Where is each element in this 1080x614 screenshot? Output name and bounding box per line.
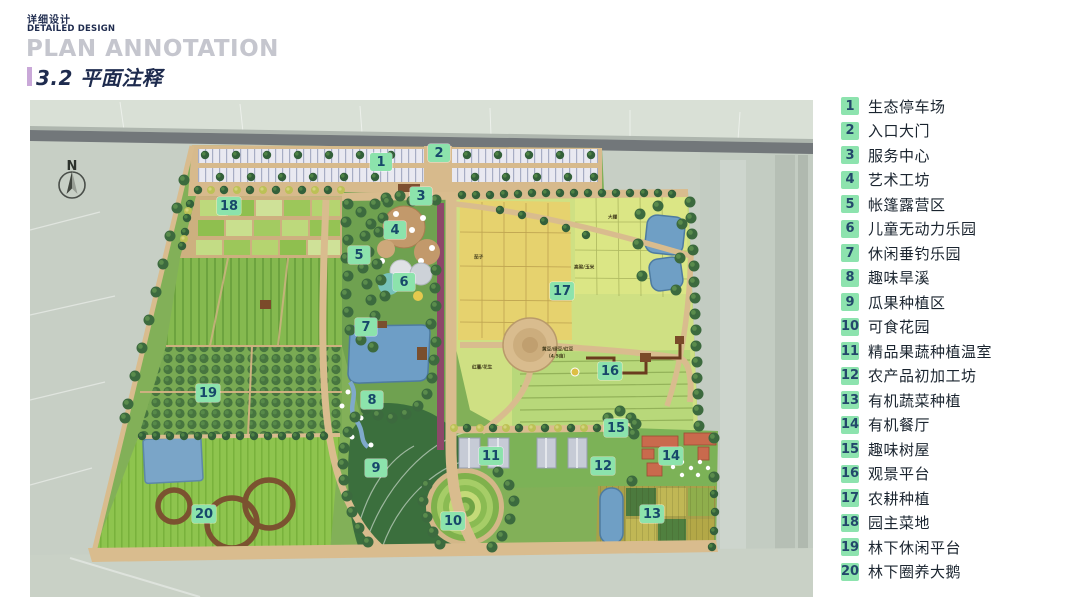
legend-item-3: 3服务中心 (841, 146, 992, 164)
legend-label: 有机餐厅 (868, 414, 930, 435)
plan-marker-2: 2 (428, 144, 450, 162)
legend-number-badge: 2 (841, 122, 859, 140)
legend-item-19: 19林下休闲平台 (841, 538, 992, 556)
plan-marker-1: 1 (370, 153, 392, 171)
legend-number-badge: 9 (841, 293, 859, 311)
legend-item-11: 11精品果蔬种植温室 (841, 342, 992, 360)
plan-marker-3: 3 (410, 187, 432, 205)
legend-number-badge: 10 (841, 318, 859, 336)
legend-item-16: 16观景平台 (841, 465, 992, 483)
legend-number-badge: 1 (841, 97, 859, 115)
legend-item-14: 14有机餐厅 (841, 416, 992, 434)
legend-number-badge: 16 (841, 465, 859, 483)
legend-label: 趣味树屋 (868, 439, 930, 460)
legend-label: 趣味旱溪 (868, 267, 930, 288)
legend-number-badge: 7 (841, 244, 859, 262)
legend-number-badge: 12 (841, 367, 859, 385)
legend-item-9: 9瓜果种植区 (841, 293, 992, 311)
legend-number-badge: 19 (841, 538, 859, 556)
legend-item-13: 13有机蔬菜种植 (841, 391, 992, 409)
legend-number-badge: 5 (841, 195, 859, 213)
legend-number-badge: 4 (841, 171, 859, 189)
legend-number-badge: 15 (841, 440, 859, 458)
legend-number-badge: 14 (841, 416, 859, 434)
plan-marker-18: 18 (217, 197, 241, 215)
legend-item-7: 7休闲垂钓乐园 (841, 244, 992, 262)
legend-item-10: 10可食花园 (841, 318, 992, 336)
legend-item-18: 18园主菜地 (841, 514, 992, 532)
legend-item-4: 4艺术工坊 (841, 171, 992, 189)
legend-label: 休闲垂钓乐园 (868, 243, 961, 264)
plan-marker-13: 13 (640, 505, 664, 523)
legend-number-badge: 6 (841, 220, 859, 238)
legend-number-badge: 17 (841, 489, 859, 507)
plan-marker-6: 6 (393, 273, 415, 291)
plan-marker-12: 12 (591, 457, 615, 475)
plan-marker-7: 7 (355, 318, 377, 336)
plan-marker-4: 4 (384, 221, 406, 239)
legend-label: 儿童无动力乐园 (868, 218, 977, 239)
legend-number-badge: 13 (841, 391, 859, 409)
legend-label: 服务中心 (868, 145, 930, 166)
legend-label: 林下休闲平台 (868, 537, 961, 558)
section-title-row: 3.2 平面注释 (27, 62, 162, 91)
legend-number-badge: 18 (841, 514, 859, 532)
plan-marker-8: 8 (361, 391, 383, 409)
legend-label: 帐篷露营区 (868, 194, 946, 215)
plan-marker-16: 16 (598, 362, 622, 380)
legend-item-20: 20林下圈养大鹅 (841, 563, 992, 581)
legend-item-12: 12农产品初加工坊 (841, 367, 992, 385)
plan-marker-14: 14 (659, 447, 683, 465)
plan-marker-9: 9 (365, 459, 387, 477)
plan-marker-17: 17 (550, 282, 574, 300)
legend-item-15: 15趣味树屋 (841, 440, 992, 458)
legend-label: 有机蔬菜种植 (868, 390, 961, 411)
plan-marker-10: 10 (441, 512, 465, 530)
legend-item-1: 1生态停车场 (841, 97, 992, 115)
plan-marker-20: 20 (192, 505, 216, 523)
doc-subtitle-en: DETAILED DESIGN (27, 24, 115, 34)
site-plan-image: N 茄子高粱/玉米大棚红薯/花生黄豆/绿豆/红豆（4.5亩） 123456789… (30, 100, 813, 597)
legend-label: 精品果蔬种植温室 (868, 341, 992, 362)
plan-marker-11: 11 (479, 447, 503, 465)
legend-number-badge: 20 (841, 563, 859, 581)
legend: 1生态停车场2入口大门3服务中心4艺术工坊5帐篷露营区6儿童无动力乐园7休闲垂钓… (841, 97, 992, 587)
legend-item-8: 8趣味旱溪 (841, 269, 992, 287)
plan-marker-19: 19 (196, 384, 220, 402)
legend-item-5: 5帐篷露营区 (841, 195, 992, 213)
page-title-en: PLAN ANNOTATION (26, 36, 279, 62)
legend-label: 林下圈养大鹅 (868, 561, 961, 582)
legend-label: 瓜果种植区 (868, 292, 946, 313)
legend-number-badge: 3 (841, 146, 859, 164)
legend-label: 入口大门 (868, 120, 930, 141)
legend-item-2: 2入口大门 (841, 122, 992, 140)
section-title: 3.2 平面注释 (36, 62, 162, 91)
legend-item-17: 17农耕种植 (841, 489, 992, 507)
legend-label: 园主菜地 (868, 512, 930, 533)
plan-marker-layer: 1234567891011121314151617181920 (30, 100, 813, 597)
legend-label: 生态停车场 (868, 96, 946, 117)
legend-number-badge: 8 (841, 269, 859, 287)
legend-label: 农产品初加工坊 (868, 365, 977, 386)
plan-marker-5: 5 (348, 246, 370, 264)
plan-marker-15: 15 (604, 419, 628, 437)
legend-number-badge: 11 (841, 342, 859, 360)
section-accent-bar (27, 67, 32, 86)
legend-label: 可食花园 (868, 316, 930, 337)
legend-label: 艺术工坊 (868, 169, 930, 190)
legend-label: 农耕种植 (868, 488, 930, 509)
legend-item-6: 6儿童无动力乐园 (841, 220, 992, 238)
legend-label: 观景平台 (868, 463, 930, 484)
